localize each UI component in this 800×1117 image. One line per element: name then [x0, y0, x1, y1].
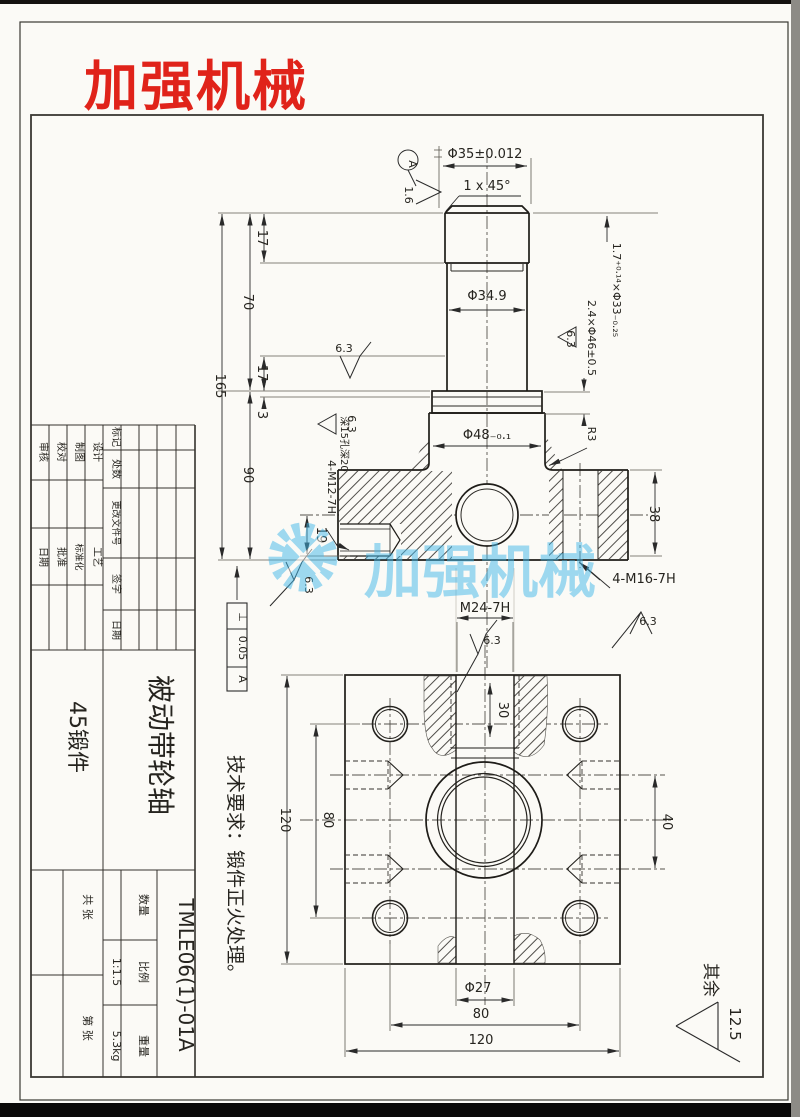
tb-check: 校对 [55, 442, 68, 462]
hatch-areas-lower [424, 676, 548, 963]
tb-change-file-no: 更改文件号 [110, 500, 122, 545]
tb-part-name: 被动带轮轴 [144, 675, 177, 815]
tb-draw: 制图 [73, 442, 86, 462]
watermark-text: 加强机械 [364, 538, 596, 606]
dim-40: 40 [659, 814, 674, 831]
engineering-drawing: Φ35±0.012 1 x 45° Φ34.9 Φ48₋₀.₁ 4-M16-7H… [0, 0, 800, 1117]
tb-drawing-no: TMLE06(1)-01A [174, 897, 198, 1052]
m12-note: 4-M12-7H [325, 460, 338, 514]
dim-dia48: Φ48₋₀.₁ [463, 428, 511, 443]
dim-70: 70 [240, 294, 255, 311]
roughness-63: 6.3 [483, 634, 501, 647]
others-roughness-value: 12.5 [726, 1007, 744, 1040]
tb-date2: 日期 [110, 620, 122, 640]
roughness-16: 1.6 [402, 186, 415, 204]
tb-scale-value: 1:1.5 [110, 958, 123, 986]
roughness-63: 6.3 [335, 342, 353, 355]
dim-80-left: 80 [320, 812, 335, 829]
chamfer-note: 1 x 45° [463, 179, 510, 194]
tb-date: 日期 [37, 547, 49, 567]
flange-bottom-view [345, 675, 620, 964]
dim-120-bottom: 120 [469, 1033, 494, 1048]
tb-weight-label: 重量 [137, 1035, 151, 1057]
tb-qty-label: 数量 [137, 894, 150, 916]
tb-mark: 标记 [110, 427, 122, 447]
dim-dia27: Φ27 [465, 981, 492, 996]
dim-30: 30 [495, 702, 510, 719]
gdt-symbol: ⊥ [236, 612, 249, 622]
dim-120-left: 120 [277, 808, 292, 833]
dim-17-top: 17 [254, 230, 269, 247]
technical-requirements: 技术要求：锻件正火处理。 [224, 755, 246, 983]
datum-a-label: A [406, 160, 419, 168]
tb-sheet-total: 共 张 [81, 894, 94, 920]
dim-3: 3 [254, 411, 269, 419]
groove-note: 1.7⁺⁰·¹⁴×Φ33₋₀.₂₅ [610, 243, 623, 337]
dim-dia35: Φ35±0.012 [448, 147, 523, 162]
dim-dia349: Φ34.9 [467, 289, 506, 304]
m16-note: 4-M16-7H [612, 572, 675, 587]
tb-standardization: 标准化 [73, 543, 85, 570]
dim-80-bottom: 80 [473, 1007, 490, 1022]
dim-90: 90 [240, 467, 255, 484]
gdt-value: 0.05 [236, 636, 249, 661]
m12-depth-note: 深15孔深20 [338, 416, 350, 471]
tb-audit: 审核 [37, 442, 50, 462]
dim-38: 38 [646, 506, 661, 523]
tb-process: 工艺 [91, 547, 103, 567]
roughness-63-icon [457, 620, 497, 692]
tb-weight-value: 5.3kg [110, 1031, 123, 1062]
shaft-section-view [338, 206, 628, 560]
tb-count: 处数 [110, 459, 123, 479]
tb-design: 设计 [91, 442, 104, 462]
tb-material: 45锻件 [64, 701, 89, 773]
tb-signature: 签字 [110, 574, 123, 594]
dim-165: 165 [212, 374, 227, 399]
collar-note: 2.4×Φ46±0.5 [585, 300, 598, 376]
gdt-datum: A [236, 675, 249, 683]
tb-approve: 批准 [55, 547, 68, 567]
roughness-63: 6.3 [639, 615, 657, 628]
roughness-1-6-icon [416, 180, 441, 204]
flange-outline [345, 675, 620, 964]
others-roughness-label: 其余 [700, 963, 720, 997]
tb-sheet-no: 第 张 [81, 1015, 95, 1041]
roughness-63-icon [318, 414, 336, 434]
dim-17-low: 17 [254, 365, 269, 382]
roughness-63: 6.3 [564, 330, 577, 348]
fillet-r3: R3 [585, 427, 598, 442]
tb-scale-label: 比例 [137, 961, 151, 983]
